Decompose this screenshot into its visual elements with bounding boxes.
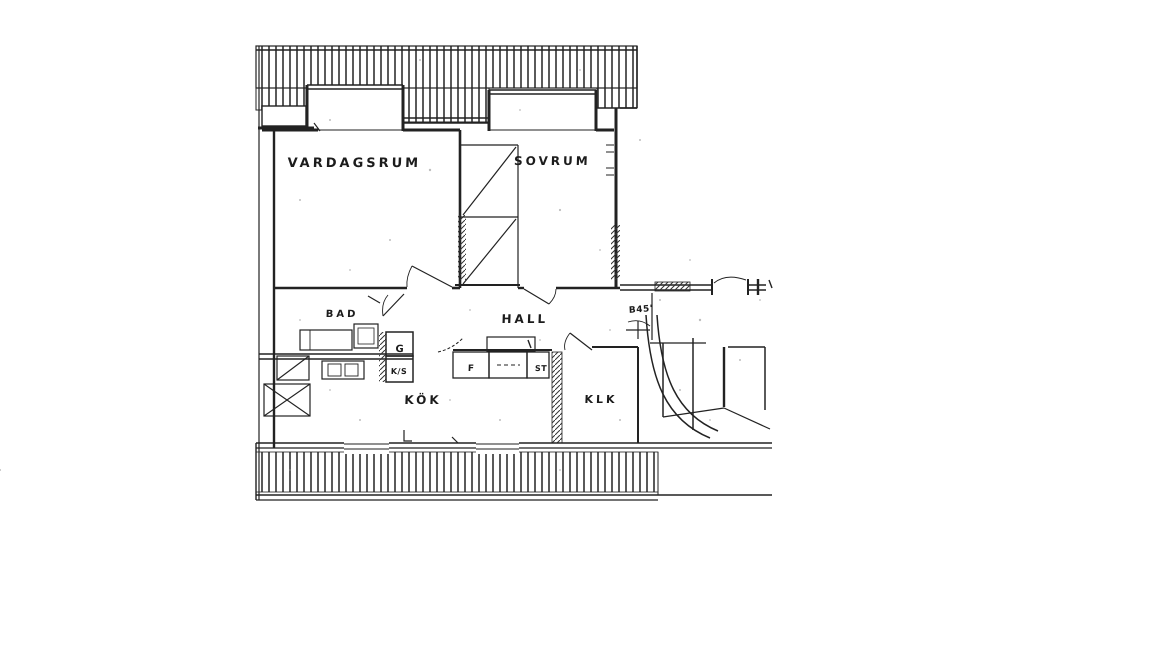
room-kok [264,337,552,443]
room-label-hall: HALL [501,312,548,326]
room-sovrum-walls [518,108,637,304]
room-vardagsrum-walls [262,130,460,288]
room-klk [552,293,652,443]
floor-plan-drawing: VARDAGSRUM SOVRUM HALL BAD KÖK KLK B45' … [0,0,1152,648]
floor-plan-page: VARDAGSRUM SOVRUM HALL BAD KÖK KLK B45' … [0,0,1152,648]
room-bad [259,294,413,359]
entry-label-b45: B45' [629,304,654,316]
window-bay-vardagsrum [307,85,403,131]
window-bay-sovrum [489,90,596,131]
hall-north-wall [620,277,772,295]
stair-area [646,315,770,438]
closet-label-ks: K/S [391,367,408,376]
cabinet-label-f: F [468,364,475,374]
room-label-sovrum: SOVRUM [514,154,591,168]
closet-strip [455,130,520,288]
room-label-bad: BAD [325,309,358,320]
room-label-vardagsrum: VARDAGSRUM [287,156,421,171]
bottom-facade-band [256,440,772,500]
room-label-klk: KLK [584,393,618,406]
room-label-kok: KÖK [404,392,442,407]
cabinet-label-st: ST [535,364,548,373]
closet-label-g: G [395,344,404,355]
